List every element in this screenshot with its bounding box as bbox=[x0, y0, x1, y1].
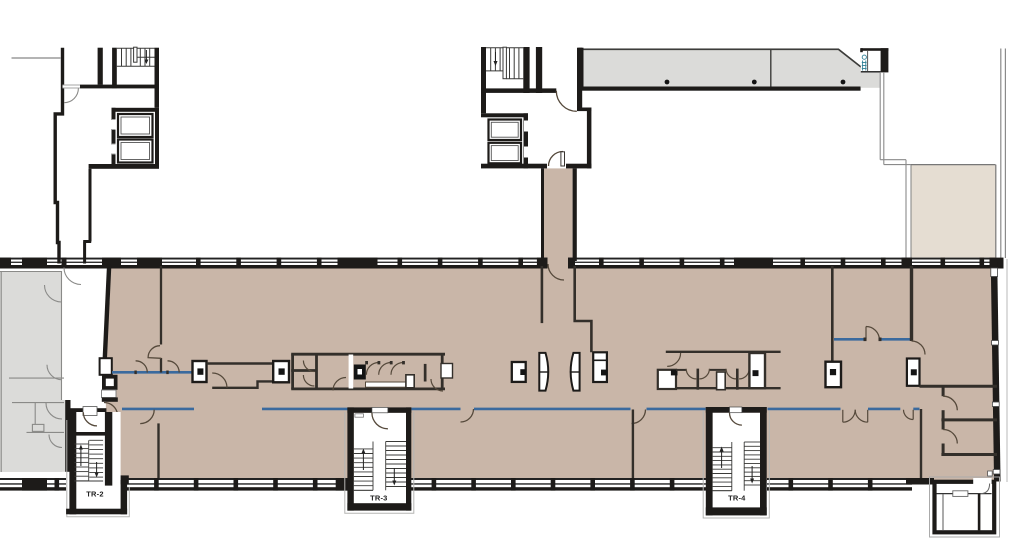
svg-text:TR-2: TR-2 bbox=[86, 490, 103, 499]
svg-text:TR-4: TR-4 bbox=[728, 494, 746, 503]
svg-text:TR-3: TR-3 bbox=[370, 494, 387, 503]
